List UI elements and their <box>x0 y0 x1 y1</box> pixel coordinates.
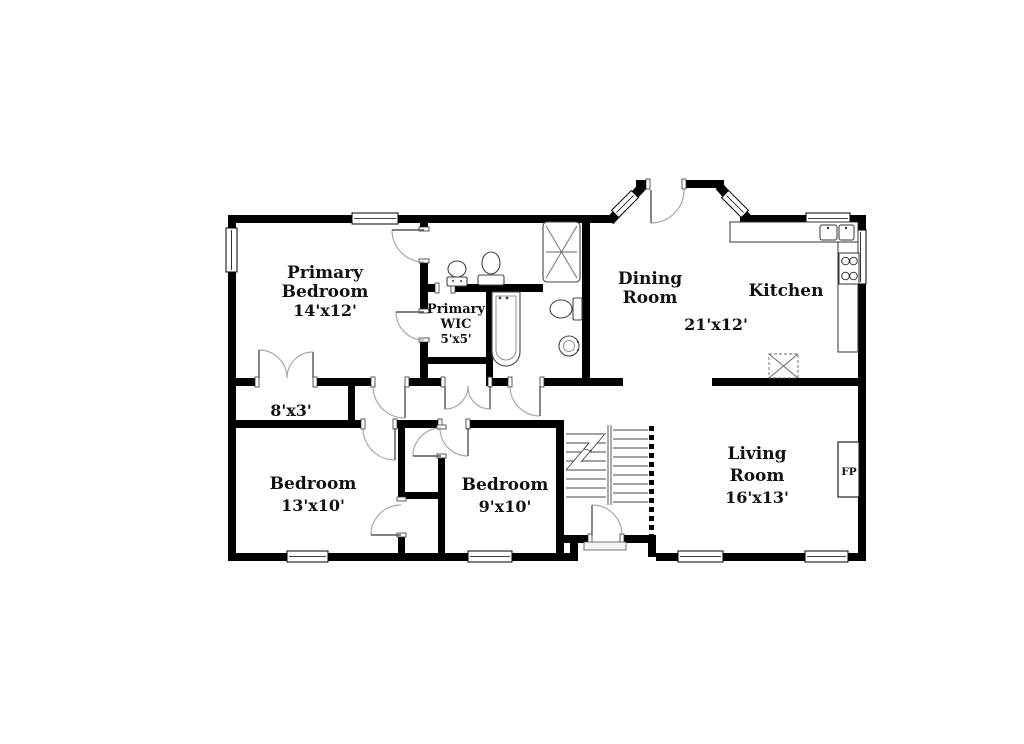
door-arc <box>413 428 441 456</box>
window-icon <box>226 228 237 272</box>
room-label-primary-bedroom: Primary Bedroom 14'x12' <box>282 263 369 320</box>
door-arc <box>373 386 405 418</box>
svg-text:Room: Room <box>623 288 678 308</box>
svg-text:Bedroom: Bedroom <box>462 475 549 495</box>
svg-text:9'x10': 9'x10' <box>479 497 532 516</box>
door-arc <box>392 230 424 262</box>
door-arc <box>592 505 622 535</box>
window-icon <box>805 551 848 562</box>
svg-text:WIC: WIC <box>439 317 471 332</box>
toilet-icon <box>550 298 582 320</box>
window-icon <box>287 551 328 562</box>
door-arc <box>363 428 395 460</box>
fireplace-icon: FP <box>838 442 859 497</box>
room-label-hall-closet: 8'x3' <box>270 401 312 420</box>
door-arc <box>510 386 540 416</box>
range-icon <box>839 253 859 284</box>
door-arc <box>440 428 468 456</box>
front-door-sill <box>584 542 626 550</box>
svg-text:14'x12': 14'x12' <box>293 301 357 320</box>
floor-plan-page: FP Primary <box>0 0 1024 744</box>
svg-text:Primary: Primary <box>287 263 364 283</box>
door-arc <box>445 386 468 409</box>
svg-text:13'x10': 13'x10' <box>281 496 345 515</box>
room-label-primary-wic: Primary WIC 5'x5' <box>427 302 486 346</box>
window-icon <box>468 551 512 562</box>
svg-text:Dining: Dining <box>618 269 682 289</box>
stairs <box>566 425 654 539</box>
room-label-bedroom-9: Bedroom 9'x10' <box>462 475 549 516</box>
fireplace-label: FP <box>841 466 856 478</box>
window-icon <box>352 213 398 224</box>
bathtub-icon <box>492 292 520 366</box>
svg-text:Room: Room <box>730 466 785 486</box>
bay-window-icon <box>722 191 749 218</box>
bay-window-icon <box>612 191 639 218</box>
svg-text:5'x5': 5'x5' <box>440 332 471 346</box>
room-label-dining-kitchen-dims: 21'x12' <box>684 315 748 334</box>
shower-icon <box>543 222 580 282</box>
kitchen-sink-icon <box>820 225 854 240</box>
round-sink-icon <box>559 336 579 356</box>
room-label-living-room: Living Room 16'x13' <box>725 444 789 507</box>
pedestal-sink-icon <box>478 252 504 285</box>
door-arc <box>259 350 287 378</box>
svg-text:Primary: Primary <box>427 302 486 317</box>
room-label-bedroom-13: Bedroom 13'x10' <box>270 474 357 515</box>
door-arc <box>396 312 424 340</box>
svg-text:Bedroom: Bedroom <box>282 282 369 302</box>
floor-plan-image: FP Primary <box>0 0 1024 744</box>
door-arc <box>287 352 313 378</box>
room-label-dining-room: Dining Room <box>618 269 682 308</box>
stair-dotted-line <box>649 426 654 539</box>
svg-text:16'x13': 16'x13' <box>725 488 789 507</box>
room-label-kitchen: Kitchen <box>749 281 824 301</box>
refrigerator-icon <box>769 354 798 378</box>
window-icon <box>678 551 723 562</box>
svg-text:Living: Living <box>728 444 787 464</box>
door-arc <box>468 386 490 409</box>
door-arc <box>651 190 684 223</box>
door-arc <box>371 505 401 535</box>
svg-text:Bedroom: Bedroom <box>270 474 357 494</box>
toilet-icon <box>447 261 467 286</box>
